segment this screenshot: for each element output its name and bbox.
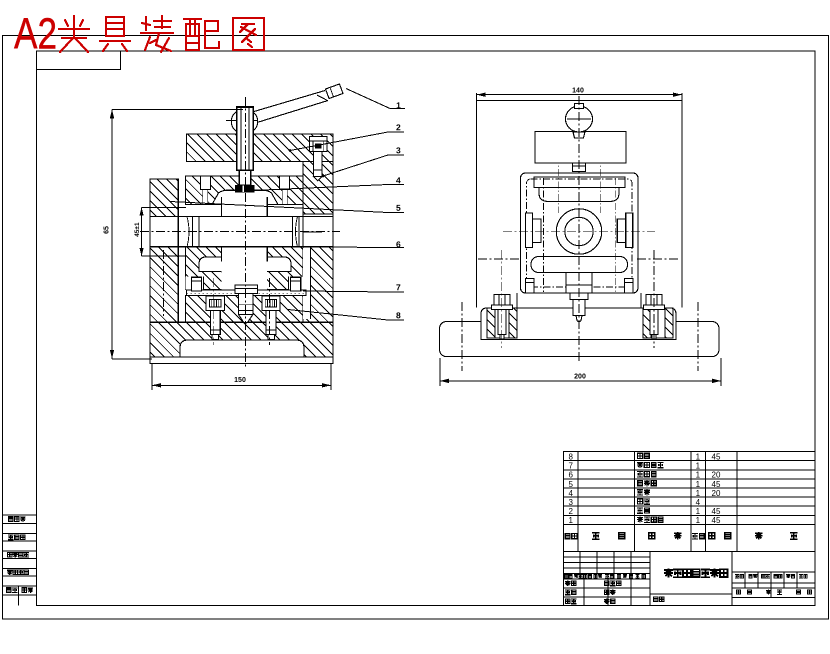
svg-text:7: 7 [396, 282, 401, 292]
svg-text:6: 6 [396, 239, 401, 249]
svg-text:2: 2 [396, 122, 401, 132]
svg-text:5: 5 [568, 480, 573, 489]
svg-text:140: 140 [572, 88, 584, 95]
svg-text:4: 4 [696, 498, 701, 507]
svg-text:1: 1 [696, 471, 701, 480]
svg-text:20: 20 [712, 489, 721, 498]
svg-text:1: 1 [568, 516, 573, 525]
svg-text:1: 1 [696, 516, 701, 525]
svg-text:1: 1 [696, 480, 701, 489]
svg-text:4: 4 [568, 489, 573, 498]
svg-text:45±1: 45±1 [134, 222, 141, 237]
svg-text:1: 1 [696, 489, 701, 498]
svg-text:45: 45 [712, 516, 721, 525]
svg-text:8: 8 [396, 310, 401, 320]
svg-text:1: 1 [696, 462, 701, 471]
svg-text:65: 65 [104, 226, 111, 234]
svg-text:45: 45 [712, 453, 721, 462]
svg-text:45: 45 [712, 507, 721, 516]
svg-text:20: 20 [712, 471, 721, 480]
svg-text:200: 200 [574, 374, 586, 381]
svg-text:2: 2 [568, 507, 573, 516]
svg-text:8: 8 [568, 453, 573, 462]
svg-text:45: 45 [712, 480, 721, 489]
svg-text:1: 1 [696, 507, 701, 516]
svg-text:5: 5 [396, 203, 401, 213]
svg-text:7: 7 [568, 462, 573, 471]
svg-text:A2: A2 [14, 10, 57, 59]
svg-text:3: 3 [396, 145, 401, 155]
svg-text:1: 1 [696, 453, 701, 462]
svg-text:6: 6 [568, 471, 573, 480]
svg-text:3: 3 [568, 498, 573, 507]
svg-text:4: 4 [396, 175, 401, 185]
svg-text:1: 1 [396, 100, 401, 110]
svg-text:150: 150 [234, 377, 246, 384]
